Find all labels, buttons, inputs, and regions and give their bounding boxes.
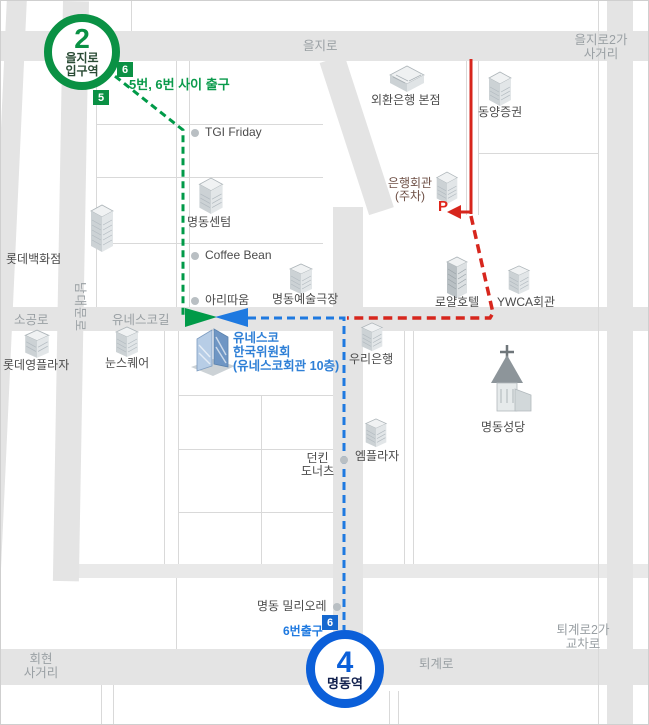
route-green-dashed [106,69,183,318]
poi-label: 명동 밀리오레 [257,600,327,613]
line4-station-name: 명동역 [327,677,363,690]
poi-label-theater: 명동예술극장 [272,293,338,306]
parking-mark: P [438,200,448,213]
poi-dot-icon [191,252,199,260]
road-label-euljiro: 을지로 [303,39,338,53]
road-label-hoehyeon: 회현 사거리 [17,652,65,680]
poi-label: TGI Friday [205,126,262,139]
poi-label-woori: 우리은행 [349,353,393,366]
poi-label-noon-square: 눈스퀘어 [105,357,149,370]
poi-aritaum: 아리따움 [191,294,249,307]
line2-station-name: 을지로 입구역 [65,52,98,78]
poi-dot-icon [333,603,341,611]
poi-label: 아리따움 [205,294,249,307]
poi-label-mplaza: 엠플라자 [355,450,399,463]
exit-note-top: 5번, 6번 사이 출구 [129,74,230,93]
poi-label-tongyang: 동양증권 [478,106,522,119]
poi-migliore: 명동 밀리오레 [257,600,341,613]
poi-label-royal-hotel: 로얄호텔 [435,296,479,309]
poi-coffee-bean: Coffee Bean [191,249,272,262]
exit-note-bottom: 6번출구 [283,622,323,639]
poi-label-keb: 외환은행 본점 [371,94,441,107]
poi-label-cathedral: 명동성당 [481,421,525,434]
poi-label: Coffee Bean [205,249,272,262]
exit-badge-6-bottom: 6 [322,615,338,630]
poi-dot-icon [191,297,199,305]
road-label-euljiro2ga: 을지로2가 사거리 [572,33,630,61]
poi-label-bank-hall: 은행회관 (주차) [382,177,438,203]
exit-badge-5-top: 5 [93,90,109,105]
poi-label-ywca: YWCA회관 [497,296,555,309]
myeongdong-area-map: TGI Friday Coffee Bean 아리따움 명동센텀 명동예술극장 … [0,0,649,725]
poi-dot-icon [340,456,348,464]
road-label-toegyero: 퇴계로 [419,657,454,671]
green-arrow-icon [185,308,217,327]
road-label-sogongro: 소공로 [14,313,49,327]
road-label-toegyero2ga: 퇴계로2가 교차로 [552,623,614,651]
line2-station-marker: 2 을지로 입구역 [44,14,120,90]
poi-label: 던킨 도너츠 [301,452,334,478]
line4-number: 4 [337,649,354,677]
poi-tgi-friday: TGI Friday [191,126,262,139]
poi-label-lotte-young: 롯데영플라자 [3,359,69,372]
blue-arrow-icon [215,308,248,327]
poi-label-unesco: 유네스코 한국위원회 (유네스코회관 10층) [233,331,339,373]
poi-label-centum: 명동센텀 [187,216,231,229]
poi-dot-icon [191,129,199,137]
poi-label-lotte-dept: 롯데백화점 [6,253,61,266]
poi-dunkin: 던킨 도너츠 [301,452,348,478]
red-arrow-icon [447,205,461,219]
line2-number: 2 [74,26,90,52]
line4-station-marker: 4 명동역 [306,630,384,708]
road-label-namdaemunro: 남대문로 [73,282,87,332]
road-label-unescogil: 유네스코길 [112,313,170,327]
